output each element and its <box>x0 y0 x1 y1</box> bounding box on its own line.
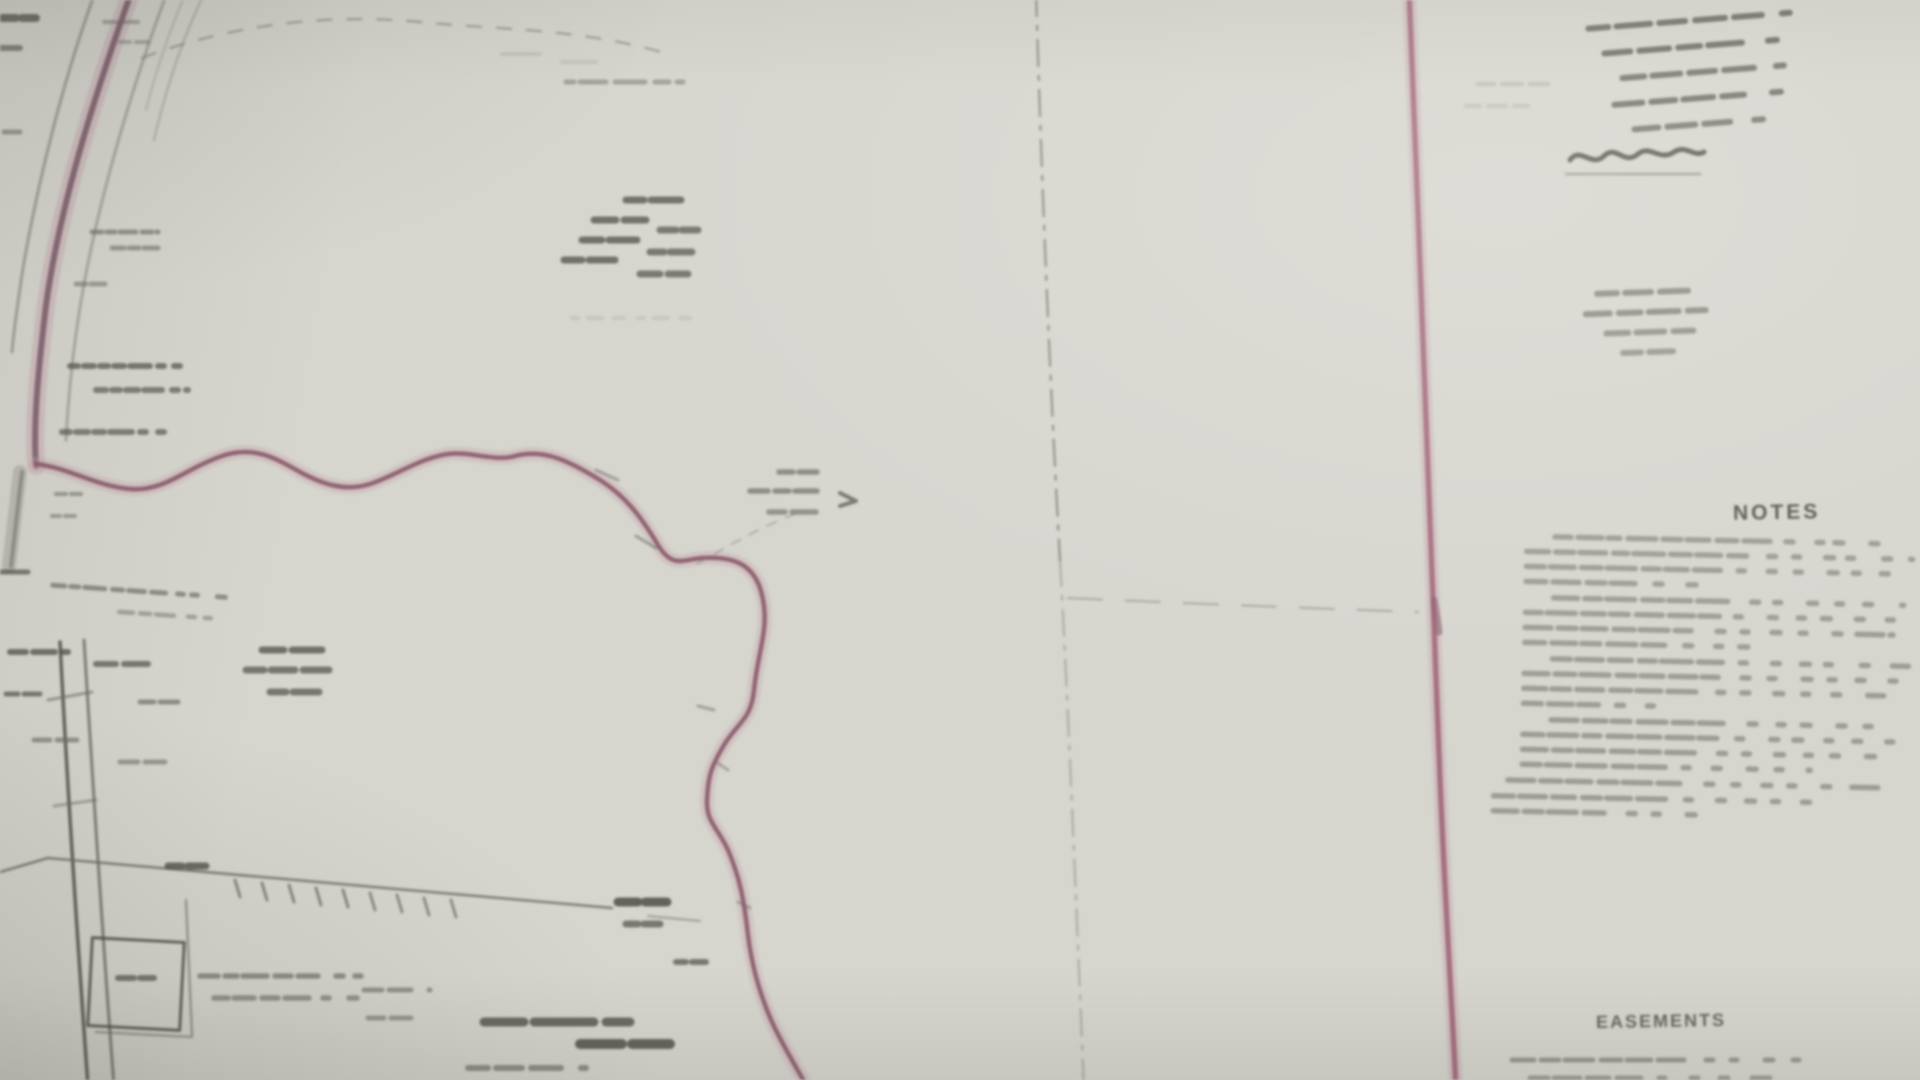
illegible-certification-block <box>1588 12 1810 132</box>
match-line <box>1036 0 1084 1080</box>
illegible-caretaker-note <box>200 976 364 998</box>
illegible-area-label <box>246 650 342 692</box>
notes-heading: NOTES <box>1733 500 1821 526</box>
homestead <box>6 652 192 1037</box>
plat-photo: NOTES EASEMENTS <box>0 0 1920 1080</box>
boundary-dashed-arc <box>142 19 668 58</box>
illegible-parcel-label <box>564 200 700 318</box>
illegible-corner-marks <box>0 18 150 132</box>
traverse-line <box>0 858 710 962</box>
illegible-plat-title <box>364 990 676 1068</box>
easements-heading: EASEMENTS <box>1596 1010 1726 1033</box>
parcel-boundary <box>36 452 806 1080</box>
tie-line-dashed <box>1068 598 1418 612</box>
surveyor-signature <box>1566 149 1704 174</box>
plat-linework <box>0 0 1920 1080</box>
illegible-line-label <box>51 585 234 620</box>
illegible-faint-notes <box>1466 84 1560 106</box>
plat-artwork: NOTES EASEMENTS <box>0 0 1920 1080</box>
plat-border-line <box>1409 0 1456 1080</box>
illegible-notes-paragraph <box>1493 536 1913 820</box>
illegible-plan-reference <box>502 54 698 82</box>
illegible-easements-text <box>1512 1060 1812 1078</box>
illegible-pointer-label <box>750 472 856 512</box>
illegible-deed-reference <box>1585 290 1717 355</box>
